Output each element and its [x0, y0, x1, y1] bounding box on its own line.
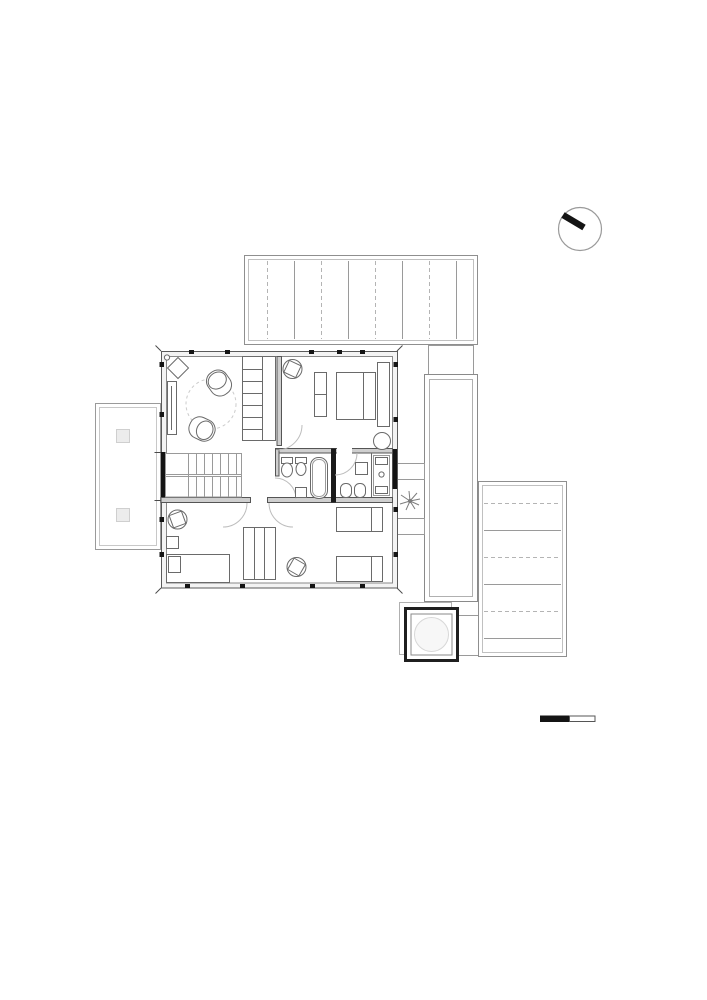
shower-bench: [376, 487, 388, 494]
balcony-inner: [100, 408, 157, 546]
shelving-unit-side: [263, 357, 276, 441]
scale-bar-filled: [540, 716, 570, 723]
door-gap: [337, 448, 352, 455]
desk-chair: [168, 510, 187, 529]
bath-cabinet: [296, 488, 307, 498]
partition-wall: [277, 357, 282, 446]
bathtub-inner: [313, 460, 326, 497]
hall-bottom-wall: [161, 498, 251, 503]
balcony-post: [117, 509, 130, 522]
scale-bar-empty: [570, 716, 596, 722]
solid-wall-segment: [161, 452, 166, 502]
plant-symbol: [400, 491, 420, 510]
roof-deck-top: [245, 256, 478, 345]
corner-ornament-circle: [164, 355, 169, 360]
washbasin: [296, 458, 307, 476]
hall-bottom-wall: [268, 498, 393, 503]
round-stool: [374, 433, 391, 450]
double-bed: [337, 373, 376, 420]
bed-pillow: [169, 557, 181, 573]
scale-bar: [540, 716, 595, 723]
walkway-connector: [429, 346, 474, 376]
bathroom-left-wall: [276, 449, 280, 476]
exterior-step: [398, 519, 425, 535]
single-bed: [337, 557, 383, 582]
wc: [282, 458, 293, 478]
wall-cabinet: [356, 463, 368, 475]
balcony: [96, 404, 161, 550]
roof-deck-right: [479, 482, 567, 657]
skylight-circle: [415, 618, 449, 652]
single-bed: [337, 508, 383, 532]
wc: [341, 484, 352, 498]
floor-plan-canvas: [0, 0, 707, 1000]
balcony-outer: [96, 404, 161, 550]
built-in-wardrobe: [244, 528, 276, 580]
deck-right-outer: [479, 482, 567, 657]
north-indicator: [559, 208, 602, 251]
solid-wall-segment: [393, 449, 398, 489]
floor-drain: [379, 472, 384, 477]
headboard-shelf: [378, 363, 390, 427]
bathroom-divider-wall: [331, 449, 336, 503]
exterior-step: [398, 464, 425, 480]
skylight-or-spa: [400, 603, 479, 661]
staircase: [166, 454, 242, 498]
desk-chair: [283, 360, 302, 379]
walkway-outer: [425, 375, 478, 602]
nightstand: [167, 537, 179, 549]
shower-bench: [376, 458, 388, 465]
stair-enclosure: [166, 454, 242, 498]
balcony-post: [117, 430, 130, 443]
bidet: [355, 484, 366, 498]
walkway: [425, 375, 478, 602]
desk-chair: [287, 558, 306, 577]
deck-top-outer: [245, 256, 478, 345]
